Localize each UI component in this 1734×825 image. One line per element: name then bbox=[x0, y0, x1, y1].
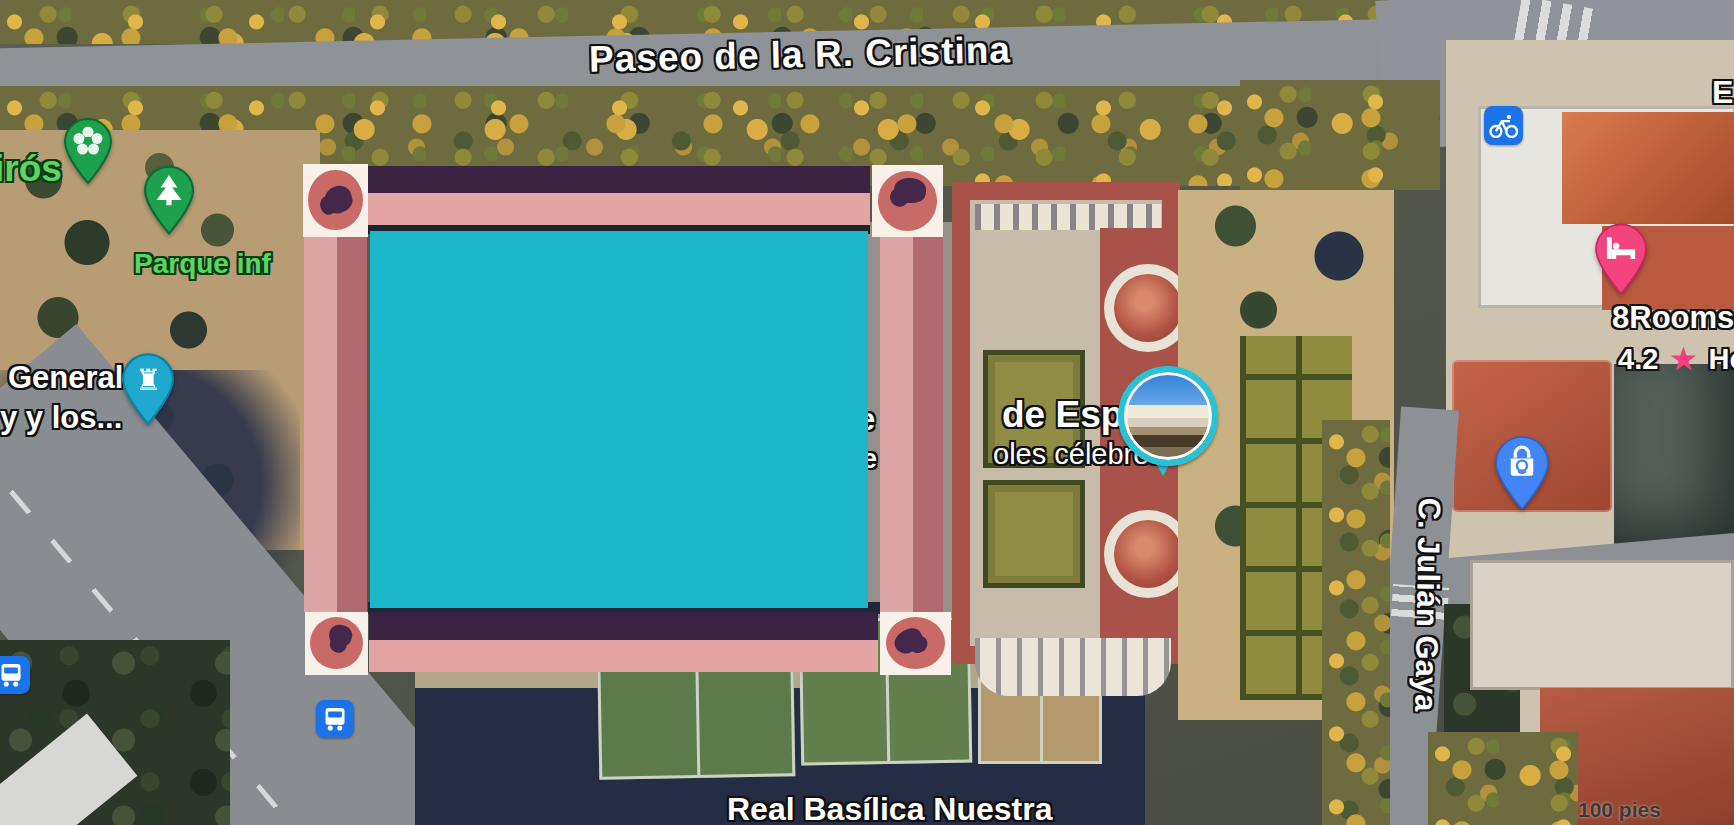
hotel-rating-value: 4.2 bbox=[1618, 343, 1658, 375]
street-label-edge-partial: E bbox=[1712, 74, 1733, 111]
overlay-corner-tr bbox=[872, 165, 943, 237]
roof-red-top-right bbox=[1562, 112, 1734, 224]
hotel-rating-suffix: Ho bbox=[1708, 343, 1734, 375]
poi-label-parque-infantil[interactable]: Parque inf bbox=[134, 248, 271, 280]
corner-pocket bbox=[308, 170, 363, 231]
poi-label-general-line1[interactable]: General bbox=[8, 360, 123, 396]
rook-icon: ♜ bbox=[135, 363, 161, 397]
corner-pocket bbox=[878, 171, 938, 231]
pocket-blob bbox=[326, 622, 355, 650]
pocket-blob bbox=[893, 176, 928, 205]
pin-body bbox=[1596, 224, 1646, 293]
dome-north bbox=[1114, 274, 1182, 342]
satellite-map[interactable]: Paseo de la R. Cristina E irós Parque in… bbox=[0, 0, 1734, 825]
bus-stop-badge-left[interactable] bbox=[0, 656, 30, 694]
poi-label-basilica[interactable]: Real Basílica Nuestra bbox=[727, 791, 1053, 825]
poi-label-general-line2[interactable]: y y los... bbox=[0, 400, 122, 436]
street-label-julian: C. Julián Gaya bbox=[1407, 497, 1447, 711]
scale-text: 100 pies bbox=[1578, 798, 1661, 822]
plaza-bottom-arcade bbox=[975, 638, 1171, 696]
pocket-blob bbox=[322, 182, 355, 215]
bike-share-badge[interactable] bbox=[1484, 106, 1523, 145]
overlay-right-bar bbox=[880, 237, 943, 612]
tree-band-right bbox=[1240, 80, 1440, 190]
corner-pocket bbox=[886, 617, 946, 669]
building-light-low-right bbox=[1470, 560, 1734, 690]
overlay-corner-bl bbox=[305, 612, 368, 675]
park-flower-pin[interactable] bbox=[64, 116, 112, 186]
bus-stop-badge-school[interactable] bbox=[316, 700, 354, 738]
monument-rook-pin[interactable]: ♜ bbox=[122, 352, 174, 426]
hotel-bed-pin[interactable] bbox=[1595, 222, 1647, 296]
park-name-fragment[interactable]: irós bbox=[0, 148, 62, 190]
pocket-blob bbox=[891, 624, 927, 657]
overlay-bottom-bar bbox=[369, 612, 878, 672]
hotel-rating-row[interactable]: 4.2 ★ Ho bbox=[1618, 342, 1734, 376]
park-tree-pin[interactable] bbox=[144, 164, 194, 236]
plaza-top-arcade bbox=[975, 204, 1161, 230]
place-photo-marker[interactable] bbox=[1118, 366, 1218, 466]
corner-pocket bbox=[310, 617, 363, 669]
overlay-left-bar bbox=[304, 237, 367, 612]
trees-bottom-right bbox=[1428, 732, 1578, 825]
building-slate-mid bbox=[1614, 364, 1734, 558]
plaza-parterre-2 bbox=[983, 480, 1085, 588]
overlay-corner-tl bbox=[303, 164, 368, 237]
overlay-corner-br bbox=[880, 612, 951, 675]
rating-star-icon: ★ bbox=[1666, 343, 1700, 375]
dome-south bbox=[1114, 520, 1182, 588]
overlay-top-bar bbox=[368, 166, 870, 225]
overlay-cyan-center bbox=[370, 231, 868, 608]
shopping-bag-pin[interactable] bbox=[1495, 434, 1549, 512]
poi-label-hotel-name[interactable]: 8Rooms bbox=[1612, 300, 1734, 336]
trees-julian-west bbox=[1322, 420, 1390, 825]
